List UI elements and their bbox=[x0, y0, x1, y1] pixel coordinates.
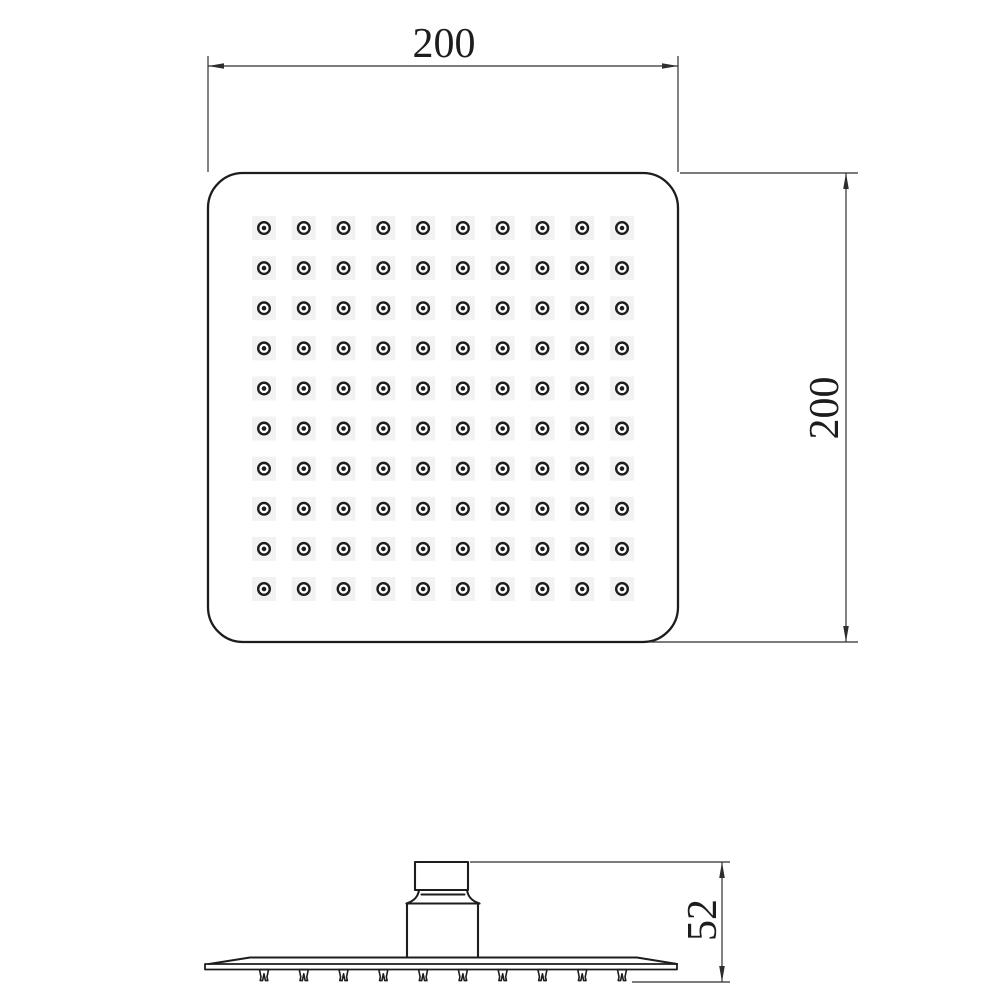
top-view bbox=[208, 173, 678, 642]
spray-hole-center bbox=[262, 587, 267, 592]
nozzle-tip bbox=[379, 970, 388, 981]
spray-hole-center bbox=[461, 386, 466, 391]
spray-hole-center bbox=[580, 266, 585, 271]
spray-hole-center bbox=[341, 306, 346, 311]
spray-hole-center bbox=[540, 226, 545, 231]
spray-hole-center bbox=[500, 426, 505, 431]
dimension-label-side-height: 52 bbox=[680, 899, 726, 941]
spray-hole-center bbox=[301, 346, 306, 351]
spray-hole-center bbox=[500, 547, 505, 552]
spray-hole-center bbox=[620, 587, 625, 592]
body-block bbox=[407, 904, 478, 958]
spray-hole-grid bbox=[252, 216, 634, 601]
spray-hole-center bbox=[461, 587, 466, 592]
spray-hole-center bbox=[301, 226, 306, 231]
spray-hole-center bbox=[301, 587, 306, 592]
spray-hole-center bbox=[301, 386, 306, 391]
spray-hole-center bbox=[461, 426, 466, 431]
spray-hole-center bbox=[461, 346, 466, 351]
dimension-top-width: 200 bbox=[208, 21, 678, 172]
spray-hole-center bbox=[540, 306, 545, 311]
spray-hole-center bbox=[461, 226, 466, 231]
spray-hole-center bbox=[461, 266, 466, 271]
spray-hole-center bbox=[500, 587, 505, 592]
spray-hole-center bbox=[500, 306, 505, 311]
spray-hole-center bbox=[341, 587, 346, 592]
spray-hole-center bbox=[580, 386, 585, 391]
shower-head-technical-drawing: 200 200 bbox=[0, 0, 1000, 1000]
spray-hole-center bbox=[262, 306, 267, 311]
arrowhead-up-icon bbox=[843, 173, 849, 189]
spray-hole-center bbox=[500, 506, 505, 511]
nozzle-tip bbox=[578, 970, 587, 981]
spray-hole-center bbox=[262, 466, 267, 471]
spray-hole-center bbox=[580, 547, 585, 552]
spray-hole-center bbox=[421, 547, 426, 552]
spray-hole-center bbox=[381, 547, 386, 552]
spray-hole-center bbox=[461, 547, 466, 552]
collar-right-curve bbox=[467, 890, 480, 904]
spray-hole-center bbox=[540, 426, 545, 431]
spray-hole-center bbox=[540, 506, 545, 511]
arrowhead-right-icon bbox=[662, 63, 678, 69]
spray-hole-center bbox=[540, 346, 545, 351]
spray-hole-center bbox=[421, 587, 426, 592]
spray-hole-center bbox=[381, 346, 386, 351]
spray-hole-center bbox=[381, 426, 386, 431]
spray-hole-center bbox=[620, 226, 625, 231]
spray-hole-center bbox=[381, 587, 386, 592]
spray-hole-center bbox=[500, 346, 505, 351]
spray-hole-center bbox=[341, 346, 346, 351]
spray-hole-center bbox=[580, 506, 585, 511]
spray-hole-center bbox=[301, 426, 306, 431]
spray-hole-center bbox=[421, 266, 426, 271]
swivel-collar bbox=[407, 890, 480, 904]
spray-hole-center bbox=[341, 426, 346, 431]
spray-hole-center bbox=[301, 306, 306, 311]
spray-hole-center bbox=[461, 506, 466, 511]
spray-hole-center bbox=[301, 466, 306, 471]
plate-top-profile bbox=[209, 958, 677, 965]
spray-hole-center bbox=[341, 226, 346, 231]
spray-hole-center bbox=[381, 306, 386, 311]
spray-hole-center bbox=[262, 226, 267, 231]
spray-hole-center bbox=[421, 346, 426, 351]
spray-hole-center bbox=[341, 386, 346, 391]
spray-hole-center bbox=[540, 386, 545, 391]
arrowhead-left-icon bbox=[208, 63, 224, 69]
spray-hole-center bbox=[262, 386, 267, 391]
spray-hole-center bbox=[580, 587, 585, 592]
spray-hole-center bbox=[620, 466, 625, 471]
spray-hole-center bbox=[262, 506, 267, 511]
arrowhead-down-icon bbox=[843, 626, 849, 642]
spray-hole-center bbox=[381, 466, 386, 471]
spray-hole-center bbox=[381, 266, 386, 271]
spray-hole-center bbox=[421, 426, 426, 431]
spray-hole-center bbox=[620, 386, 625, 391]
spray-hole-center bbox=[421, 506, 426, 511]
spray-hole-center bbox=[461, 306, 466, 311]
spray-hole-center bbox=[301, 266, 306, 271]
dimension-right-height: 200 bbox=[650, 173, 858, 642]
spray-hole-center bbox=[381, 386, 386, 391]
spray-hole-center bbox=[341, 547, 346, 552]
drawing-canvas: 200 200 bbox=[0, 0, 1000, 1000]
spray-hole-center bbox=[540, 547, 545, 552]
spray-hole-center bbox=[580, 466, 585, 471]
spray-hole-center bbox=[262, 426, 267, 431]
spray-hole-center bbox=[341, 466, 346, 471]
spray-hole-center bbox=[421, 226, 426, 231]
nozzle-tip bbox=[538, 970, 547, 981]
side-view bbox=[205, 862, 677, 981]
spray-hole-center bbox=[580, 306, 585, 311]
nozzle-tip bbox=[419, 970, 428, 981]
dimension-label-right-height: 200 bbox=[802, 377, 848, 440]
spray-hole-center bbox=[421, 466, 426, 471]
spray-hole-center bbox=[262, 547, 267, 552]
spray-hole-center bbox=[620, 547, 625, 552]
nozzle-tip bbox=[458, 970, 467, 981]
spray-hole-center bbox=[301, 506, 306, 511]
nozzle-tip bbox=[339, 970, 348, 981]
spray-hole-center bbox=[262, 346, 267, 351]
spray-hole-center bbox=[421, 306, 426, 311]
spray-hole-center bbox=[540, 466, 545, 471]
spray-hole-center bbox=[262, 266, 267, 271]
collar-left-curve bbox=[407, 890, 420, 904]
spray-hole-center bbox=[381, 226, 386, 231]
spray-hole-center bbox=[620, 506, 625, 511]
arrowhead-down-icon bbox=[719, 966, 725, 982]
spray-hole-center bbox=[341, 266, 346, 271]
nozzle-tip bbox=[618, 970, 627, 981]
spray-hole-center bbox=[341, 506, 346, 511]
spray-hole-center bbox=[461, 466, 466, 471]
spray-hole-center bbox=[500, 466, 505, 471]
spray-hole-center bbox=[301, 547, 306, 552]
nozzle-tip bbox=[498, 970, 507, 981]
spray-hole-center bbox=[540, 266, 545, 271]
spray-hole-center bbox=[500, 386, 505, 391]
spray-hole-center bbox=[620, 266, 625, 271]
inlet-connector bbox=[415, 862, 468, 890]
spray-hole-center bbox=[580, 426, 585, 431]
dimension-label-top-width: 200 bbox=[413, 21, 476, 67]
spray-hole-center bbox=[500, 226, 505, 231]
nozzle-tip bbox=[299, 970, 308, 981]
spray-hole-center bbox=[620, 426, 625, 431]
spray-hole-center bbox=[500, 266, 505, 271]
spray-hole-center bbox=[580, 226, 585, 231]
arrowhead-up-icon bbox=[719, 862, 725, 878]
plate-bottom-strip bbox=[205, 964, 677, 970]
spray-hole-center bbox=[580, 346, 585, 351]
spray-hole-center bbox=[381, 506, 386, 511]
nozzle-tip-row bbox=[260, 970, 627, 981]
spray-hole-center bbox=[620, 306, 625, 311]
spray-hole-center bbox=[421, 386, 426, 391]
nozzle-tip bbox=[260, 970, 269, 981]
spray-hole-center bbox=[540, 587, 545, 592]
shower-plate-outline bbox=[208, 173, 678, 642]
spray-hole-center bbox=[620, 346, 625, 351]
